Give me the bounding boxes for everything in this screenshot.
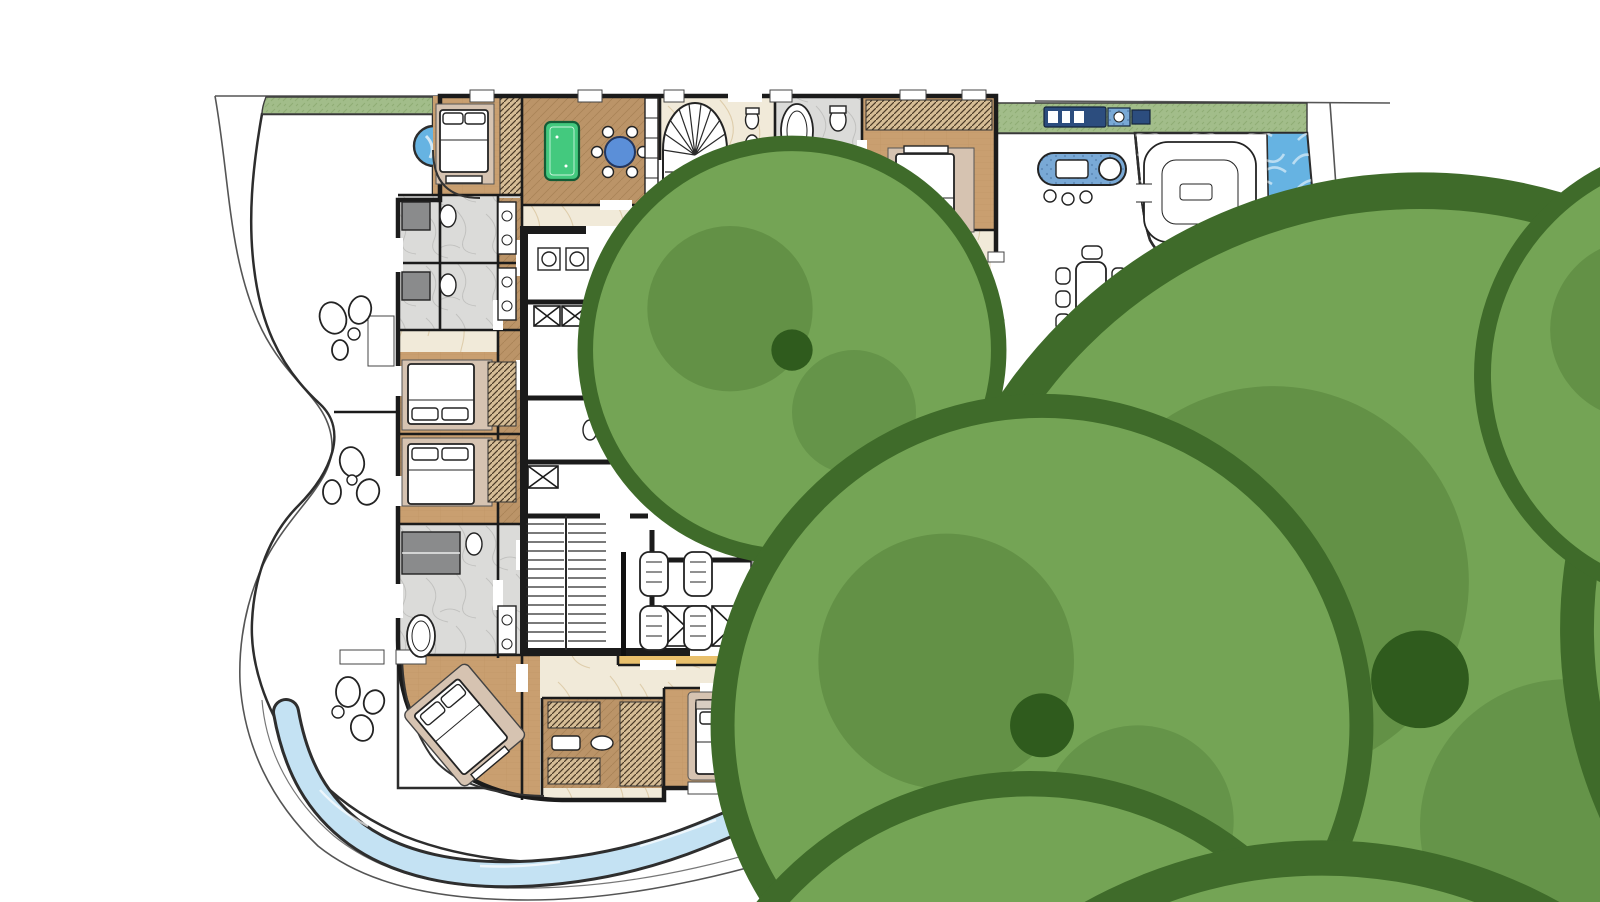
toilet	[466, 533, 482, 555]
floor-plan-page	[0, 0, 1600, 902]
grass-strip-right	[996, 103, 1307, 133]
pebble-seats-south	[332, 677, 388, 743]
outdoor-spa-bar	[1038, 153, 1126, 205]
outdoor-kitchen	[1044, 107, 1150, 127]
double-bed	[408, 444, 474, 504]
double-bed	[440, 110, 488, 172]
pebble-seats-north	[315, 294, 374, 360]
top-left-bedroom	[433, 104, 494, 198]
floor-plan-drawing	[0, 0, 1600, 902]
top-left-closet	[500, 96, 522, 198]
screen	[621, 552, 626, 656]
double-bed	[408, 364, 474, 424]
grass-strip-left	[262, 97, 433, 114]
round-games-table	[605, 137, 635, 167]
wardrobe-band	[866, 100, 992, 130]
